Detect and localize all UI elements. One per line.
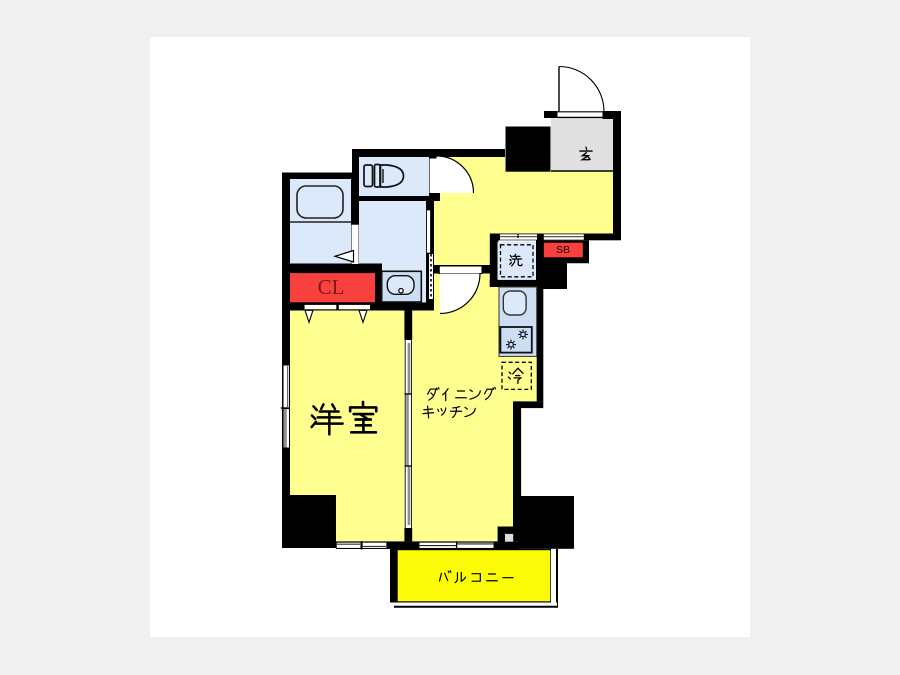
svg-text:CL: CL bbox=[318, 275, 345, 299]
svg-text:SB: SB bbox=[556, 244, 570, 256]
